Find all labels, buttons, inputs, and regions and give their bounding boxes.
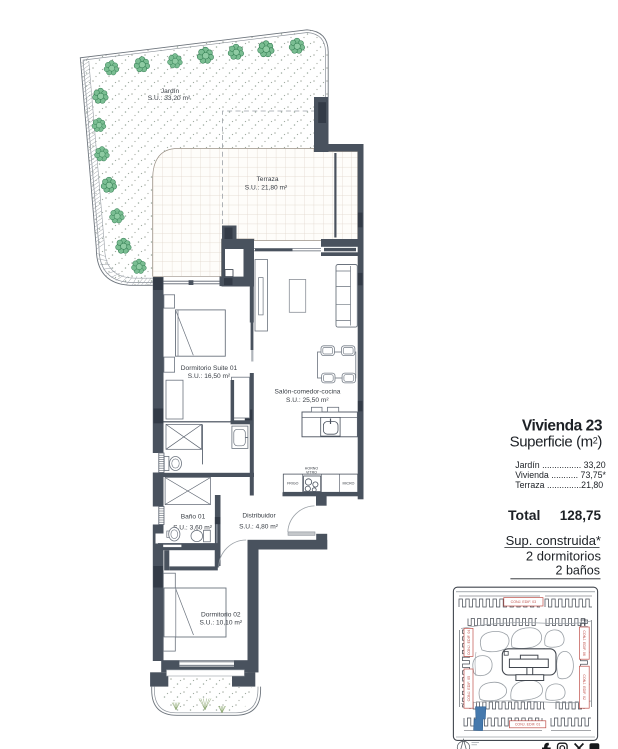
svg-text:CONJ. EDIF. 02: CONJ. EDIF. 02 — [582, 674, 586, 700]
svg-text:2 baños: 2 baños — [556, 564, 600, 578]
svg-text:CONJ. EDIF. 06: CONJ. EDIF. 06 — [582, 630, 586, 656]
svg-text:Vivienda ........... 73,75*: Vivienda ........... 73,75* — [515, 470, 606, 480]
svg-text:Dormitorio 02: Dormitorio 02 — [201, 612, 241, 619]
svg-text:128,75: 128,75 — [560, 508, 602, 523]
svg-text:CONJ. EDIF. 05: CONJ. EDIF. 05 — [467, 676, 471, 702]
svg-text:Sup. construida*: Sup. construida* — [506, 533, 601, 548]
svg-text:Terraza: Terraza — [257, 176, 279, 183]
svg-text:Jardín: Jardín — [161, 88, 180, 95]
svg-text:Baño 01: Baño 01 — [181, 513, 206, 520]
svg-text:CONJ. EDIF. 03: CONJ. EDIF. 03 — [511, 600, 537, 604]
svg-text:2 dormitorios: 2 dormitorios — [526, 549, 602, 564]
svg-text:S.U.: 4,80 m²: S.U.: 4,80 m² — [239, 524, 279, 531]
svg-text:Superficie (m2): Superficie (m2) — [510, 434, 603, 451]
svg-text:Distribuidor: Distribuidor — [242, 513, 276, 520]
svg-text:S.U.: 25,50 m²: S.U.: 25,50 m² — [286, 397, 329, 404]
svg-text:S.U.: 16,50 m²: S.U.: 16,50 m² — [188, 373, 231, 380]
svg-text:CONJ. EDIF. 01: CONJ. EDIF. 01 — [515, 723, 541, 727]
svg-text:Dormitorio Suite 01: Dormitorio Suite 01 — [181, 365, 238, 372]
svg-text:Salón-comedor-cocina: Salón-comedor-cocina — [275, 389, 341, 396]
svg-text:CONJ. EDIF. 04: CONJ. EDIF. 04 — [467, 630, 471, 656]
svg-text:S.U.: 10,10 m²: S.U.: 10,10 m² — [200, 620, 243, 627]
svg-text:S.U.: 21,80 m²: S.U.: 21,80 m² — [245, 184, 288, 191]
svg-text:S.U.: 33,20 m²: S.U.: 33,20 m² — [148, 95, 191, 102]
svg-text:VITRO: VITRO — [306, 470, 317, 474]
svg-text:Vivienda 23: Vivienda 23 — [522, 418, 603, 435]
svg-text:Terraza ..............21,80: Terraza ..............21,80 — [515, 480, 603, 490]
svg-text:Total: Total — [508, 507, 540, 523]
svg-text:FRIGO: FRIGO — [287, 482, 299, 486]
svg-text:MICRO: MICRO — [343, 482, 355, 486]
svg-text:Jardín ................ 33,20: Jardín ................ 33,20 — [515, 460, 606, 470]
